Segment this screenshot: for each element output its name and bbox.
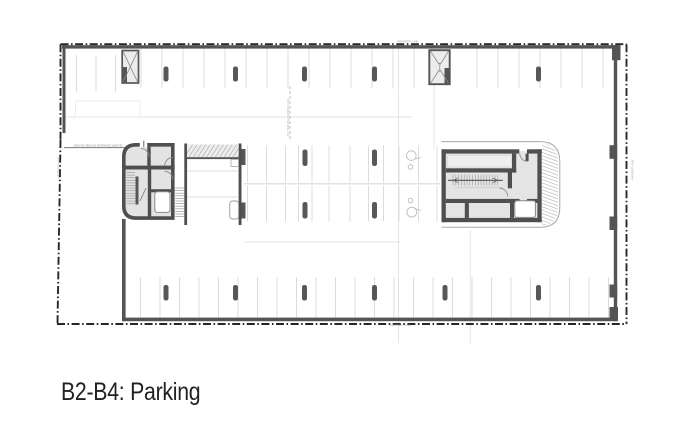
svg-text:PROPERTY LINE: PROPERTY LINE — [56, 157, 60, 178]
svg-text:PROPERTY LINE: PROPERTY LINE — [390, 323, 411, 327]
svg-text:PROPERTY LINE: PROPERTY LINE — [398, 40, 419, 44]
svg-text:8'-0" BUILDING SETBACK LINE: 8'-0" BUILDING SETBACK LINE — [286, 98, 290, 136]
svg-text:2ND FLR VEHICLE ENTRANCE (ABOV: 2ND FLR VEHICLE ENTRANCE (ABOVE) — [74, 144, 123, 148]
svg-text:PROPERTY LINE: PROPERTY LINE — [630, 159, 634, 180]
